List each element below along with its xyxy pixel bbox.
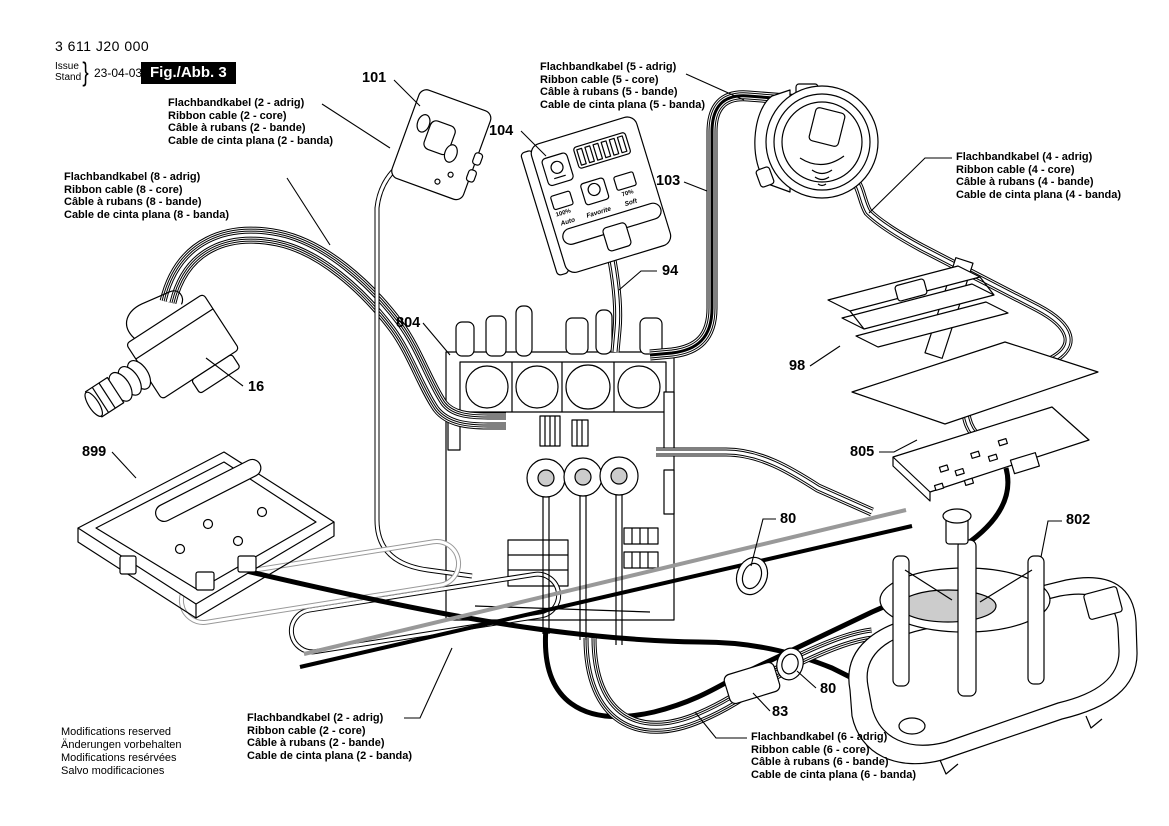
line-art-shape [566,318,588,354]
line-art-shape [423,323,450,355]
line-art-shape [893,556,909,686]
label-cable-6core: Flachbandkabel (6 - adrig) Ribbon cable … [751,731,916,781]
part-callout-805: 805 [850,444,874,460]
line-art-shape [538,470,554,486]
line-art-shape [238,556,256,572]
part-callout-899: 899 [82,444,106,460]
parts-diagram-page: 100% 70% Auto Favorite Soft [0,0,1169,826]
line-art-shape [566,365,610,409]
modifications-notice: Modifications reserved Änderungen vorbeh… [61,726,181,778]
line-art-shape [394,80,420,106]
line-art-shape [797,671,816,688]
line-art-shape [404,648,452,718]
label-cable-2core-top: Flachbandkabel (2 - adrig) Ribbon cable … [168,97,333,147]
line-art-shape [656,452,872,512]
document-part-number: 3 611 J20 000 [55,38,149,54]
line-art-shape [624,552,658,568]
line-art-shape [1028,556,1044,684]
line-art-shape [869,158,952,213]
issue-label: Issue [55,61,81,72]
line-art-shape [684,182,707,191]
line-art-shape [618,366,660,408]
line-art-shape [575,469,591,485]
line-art-shape [596,310,612,354]
line-art-shape [664,470,674,514]
line-art-shape [810,346,840,366]
part-83-sleeve [723,661,781,705]
part-callout-103: 103 [656,173,680,189]
part-callout-94: 94 [662,263,678,279]
part-callout-802: 802 [1066,512,1090,528]
label-cable-5core: Flachbandkabel (5 - adrig) Ribbon cable … [540,61,705,111]
line-art-shape [619,271,657,290]
line-art-shape [486,316,506,356]
label-cable-4core: Flachbandkabel (4 - adrig) Ribbon cable … [956,151,1121,201]
stand-label: Stand [55,72,81,83]
line-art-shape [516,366,558,408]
line-art-shape [456,322,474,356]
line-art-shape [516,306,532,356]
part-805-pcb [893,407,1089,501]
line-art-shape [943,509,971,523]
issue-stand-labels: Issue Stand [55,61,81,83]
part-callout-80-upper: 80 [780,511,796,527]
line-art-shape [611,468,627,484]
line-art-shape [893,407,1089,492]
line-art-shape [112,452,136,478]
brace-glyph: } [82,57,88,88]
part-callout-98: 98 [789,358,805,374]
line-art-shape [196,572,214,590]
part-callout-80-lower: 80 [820,681,836,697]
ribbon-cable-94-panel [612,260,618,352]
part-98-bracket-assembly [828,258,1098,424]
part-101-switch-plate [390,88,498,204]
line-art-shape [664,392,674,452]
part-callout-16: 16 [248,379,264,395]
figure-badge: Fig./Abb. 3 [141,62,236,84]
line-art-shape [958,540,976,696]
part-callout-83: 83 [772,704,788,720]
label-cable-2core-bottom: Flachbandkabel (2 - adrig) Ribbon cable … [247,712,412,762]
line-art-shape [900,590,996,622]
rotary-dial [755,84,878,198]
issue-date: 23-04-03 [94,66,142,80]
line-art-shape [1041,521,1062,557]
part-899-mounting-plate [78,452,334,618]
part-callout-101: 101 [362,70,386,86]
line-art-shape [466,366,508,408]
line-art-shape [879,440,917,452]
part-16-switch [58,273,248,449]
part-callout-104: 104 [489,123,513,139]
line-art-shape [640,318,662,354]
line-art-shape [624,528,658,544]
line-art-shape [572,420,588,446]
line-art-shape [120,556,136,574]
part-callout-804: 804 [396,315,420,331]
line-art-shape [723,661,781,705]
label-cable-8core: Flachbandkabel (8 - adrig) Ribbon cable … [64,171,229,221]
part-104-control-panel: 100% 70% Auto Favorite Soft [519,115,673,278]
